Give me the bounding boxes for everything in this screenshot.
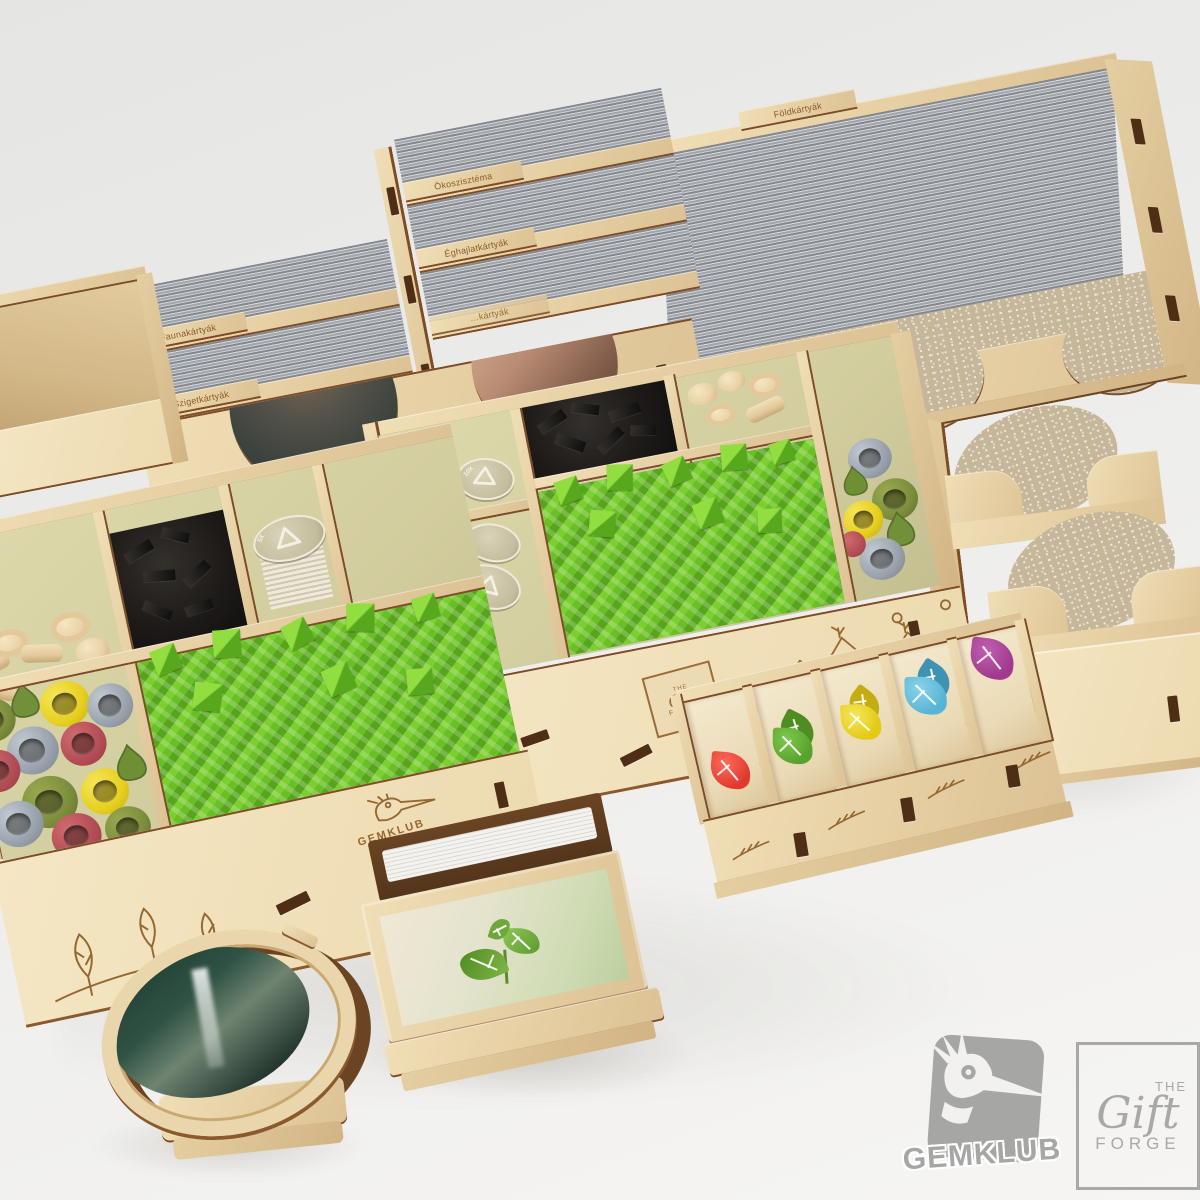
gift-forge-watermark: THE Gift FORGE — [1076, 1042, 1200, 1190]
wheat-engraving — [823, 805, 870, 832]
watermark-forge: FORGE — [1095, 1134, 1180, 1154]
oval-card-art — [93, 925, 327, 1121]
wheat-engraving — [922, 774, 969, 801]
gemklub-watermark: GEMKLUB — [896, 1030, 1068, 1192]
divider-tab-label: …kártyák — [469, 306, 510, 323]
product-photo-scene: Földkártyák Ökoszisztéma Éghajlatkártyák — [0, 0, 1200, 1200]
leaf-token-purple — [968, 636, 1017, 681]
wheat-engraving — [727, 835, 774, 862]
sprout-leaf — [457, 941, 510, 987]
sprout-leaf — [503, 927, 540, 954]
watermark-gift: Gift — [1096, 1094, 1179, 1134]
leaf-token-red — [709, 751, 752, 790]
divider-tab-label: Földkártyák — [773, 101, 823, 120]
card-stand-oval — [86, 919, 370, 1189]
token-multiplier-label: 5X — [257, 534, 267, 544]
waterfall-streak — [191, 967, 224, 1068]
card-column-back: Ökoszisztéma Éghajlatkártyák …kártyák — [394, 88, 701, 348]
